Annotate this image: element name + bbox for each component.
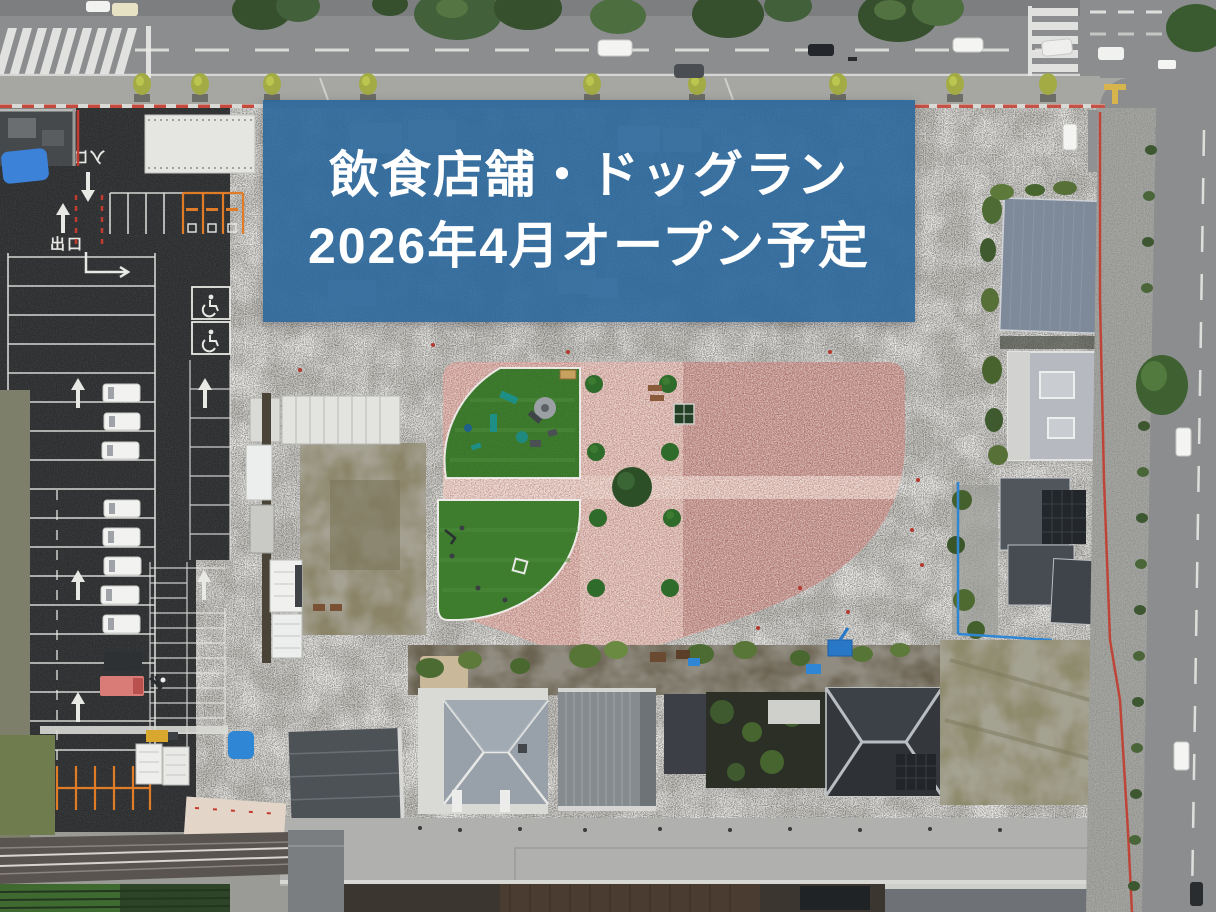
lawn-right: [940, 640, 1108, 805]
house-long-roof: [288, 728, 404, 824]
bottom-buildings: [330, 884, 1095, 912]
bottom-alley: [280, 818, 1110, 886]
covered-car: [228, 731, 254, 759]
house-white-frame: [418, 688, 548, 814]
entrance-marking: 入口: [71, 148, 105, 165]
house-hip-roof: [826, 688, 942, 796]
banner-line-2: 2026年4月オープン予定: [308, 219, 870, 274]
stop-line: [146, 26, 151, 78]
right-road: [1086, 108, 1216, 912]
concrete-pad: [145, 115, 255, 173]
announcement-banner: 飲食店舗・ドッグラン 2026年4月オープン予定: [263, 100, 915, 322]
house-ribbed-roof: [558, 688, 656, 811]
banner-line-1: 飲食店舗・ドッグラン: [329, 148, 849, 203]
exit-marking: 出口: [50, 235, 84, 253]
aerial-site-photo: 入口 出口: [0, 0, 1216, 912]
blue-tarp: [0, 148, 49, 185]
house-garden-dark: [706, 692, 826, 788]
street-tree-large: [1136, 355, 1188, 415]
